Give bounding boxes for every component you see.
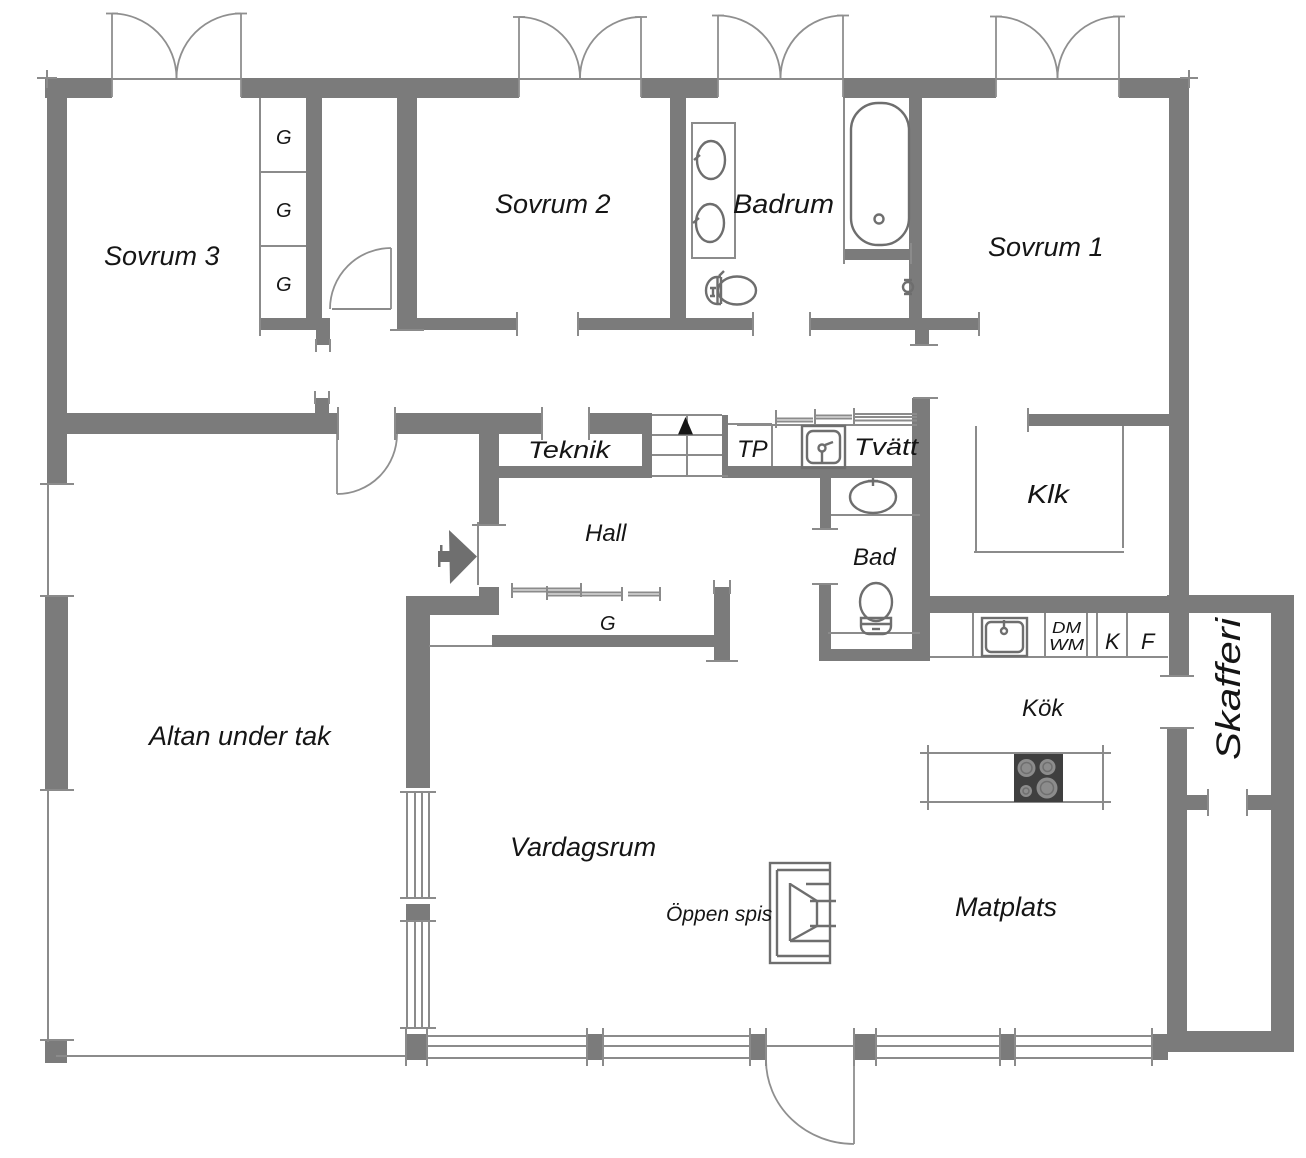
svg-text:Tvätt: Tvätt [854,434,920,461]
svg-text:F: F [1141,629,1156,654]
svg-text:Vardagsrum: Vardagsrum [510,832,656,862]
svg-text:Klk: Klk [1027,479,1071,509]
svg-text:DM: DM [1052,620,1082,637]
svg-text:K: K [1105,629,1121,654]
svg-text:Sovrum 2: Sovrum 2 [495,189,611,219]
svg-text:Matplats: Matplats [955,892,1057,922]
svg-text:Kök: Kök [1022,695,1065,722]
svg-text:G: G [276,200,292,222]
svg-text:Badrum: Badrum [733,189,834,219]
svg-text:Bad: Bad [853,544,896,571]
svg-text:Teknik: Teknik [528,437,612,464]
svg-text:TP: TP [737,436,768,463]
svg-text:G: G [600,613,616,635]
svg-text:Sovrum 3: Sovrum 3 [104,241,220,271]
svg-text:Hall: Hall [585,520,627,547]
svg-text:Altan under tak: Altan under tak [147,721,332,751]
svg-text:G: G [276,274,292,296]
svg-text:Öppen spis: Öppen spis [666,903,773,926]
svg-text:WM: WM [1049,637,1085,654]
svg-text:Sovrum 1: Sovrum 1 [988,232,1104,262]
svg-text:Skafferi: Skafferi [1210,616,1248,760]
svg-text:G: G [276,127,292,149]
